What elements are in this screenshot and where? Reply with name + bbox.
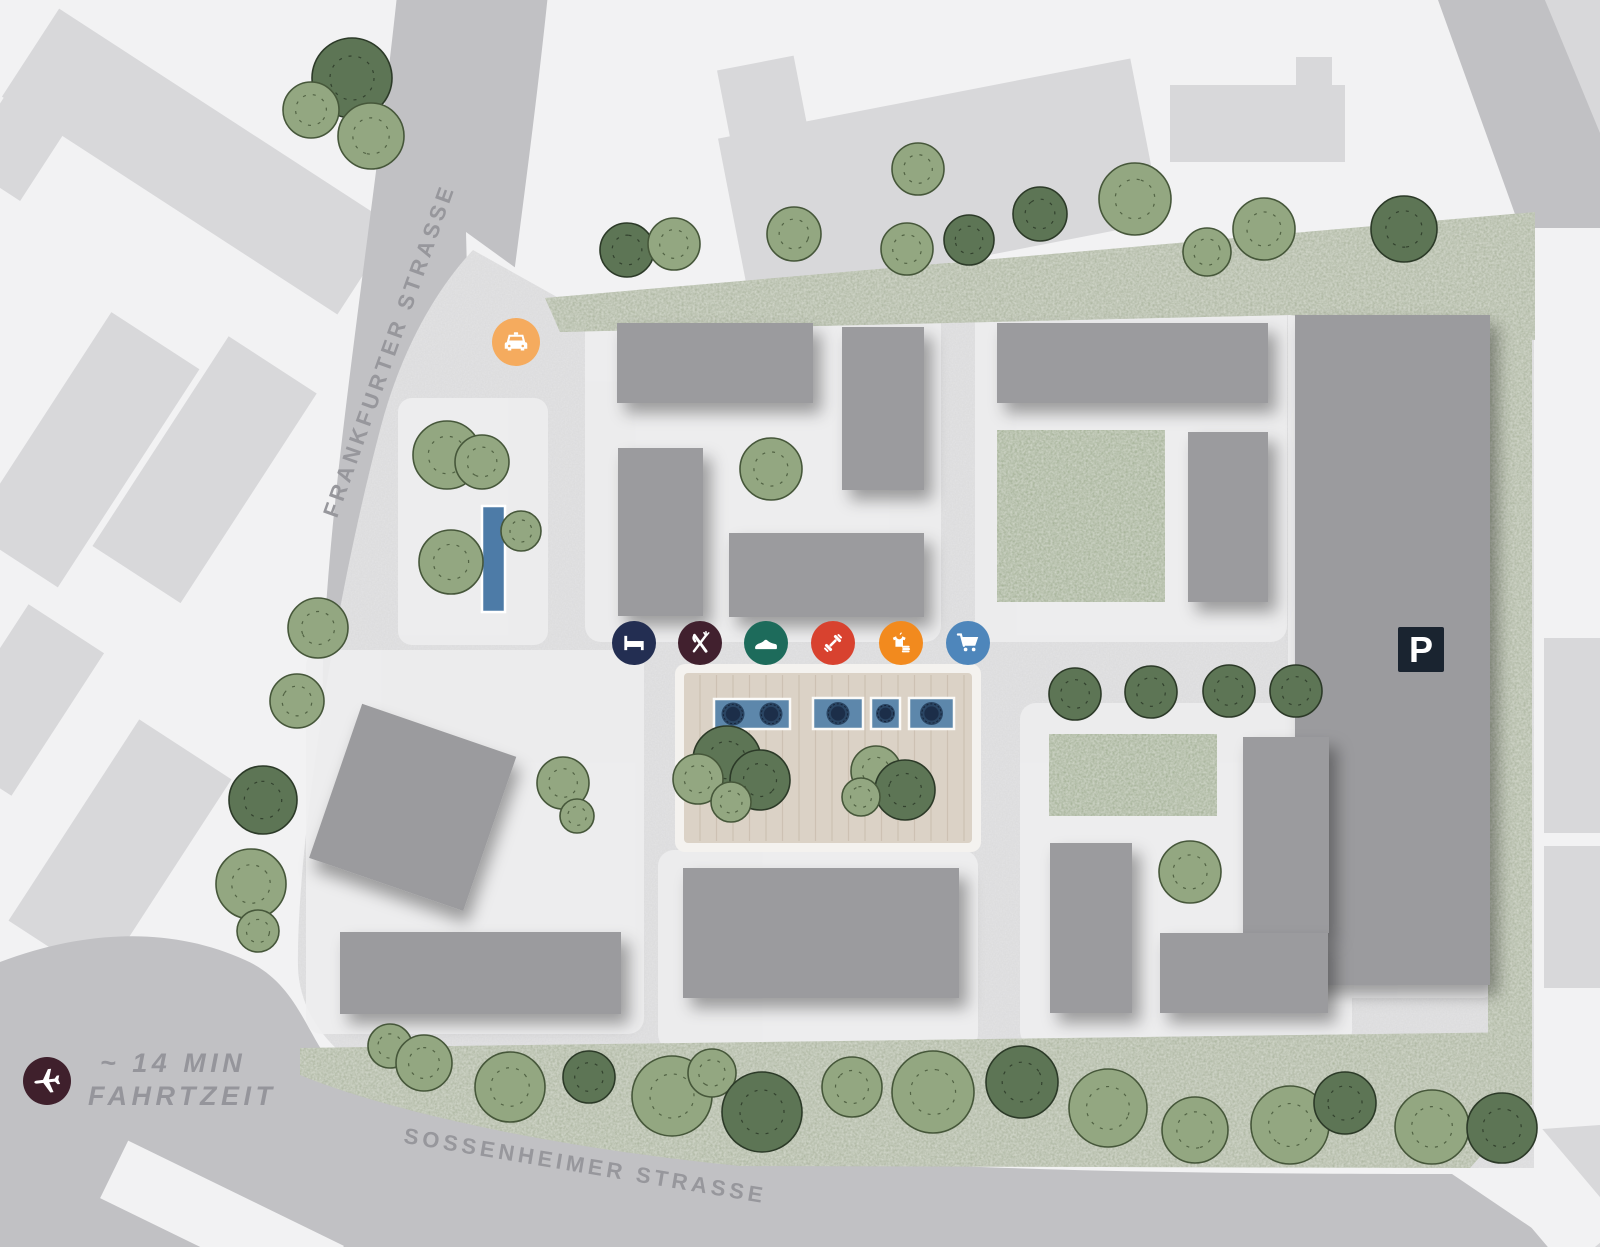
tree	[767, 207, 821, 261]
building	[997, 323, 1268, 403]
pool-basin	[876, 704, 895, 723]
tree	[1125, 666, 1177, 718]
tree	[216, 849, 286, 919]
tree	[283, 82, 339, 138]
tree	[648, 218, 700, 270]
grass-strip-right	[1488, 300, 1532, 1105]
tree	[1203, 665, 1255, 717]
tree	[1270, 665, 1322, 717]
fashion-store-icon[interactable]	[879, 621, 923, 665]
pool-basin	[920, 702, 943, 725]
building	[340, 932, 621, 1014]
hotel-bed-icon[interactable]	[612, 621, 656, 665]
tree	[1233, 198, 1295, 260]
tree	[501, 511, 541, 551]
building	[683, 868, 959, 998]
tree	[875, 760, 935, 820]
restaurant-icon[interactable]	[678, 621, 722, 665]
tree	[338, 103, 404, 169]
tree	[1314, 1072, 1376, 1134]
building	[1050, 843, 1132, 1013]
tree	[1049, 668, 1101, 720]
tree	[600, 223, 654, 277]
tree	[842, 778, 880, 816]
tree	[396, 1035, 452, 1091]
tree	[229, 766, 297, 834]
courtyard-green-2	[1049, 734, 1217, 816]
tree	[1183, 228, 1231, 276]
shoe-store-icon[interactable]	[744, 621, 788, 665]
tree	[563, 1051, 615, 1103]
building	[729, 533, 924, 617]
tree	[711, 782, 751, 822]
tree	[1371, 196, 1437, 262]
tree	[1395, 1090, 1469, 1164]
pool-basin	[827, 702, 850, 725]
site-plan-map: P	[0, 0, 1600, 1247]
site-map-svg: P	[0, 0, 1600, 1247]
tree	[1013, 187, 1067, 241]
parking-sign: P	[1398, 627, 1444, 672]
tree	[892, 143, 944, 195]
courtyard-green-1	[997, 430, 1165, 602]
tree	[270, 674, 324, 728]
tree	[1162, 1097, 1228, 1163]
travel-time-line2: FAHRTZEIT	[88, 1081, 277, 1111]
tree	[1069, 1069, 1147, 1147]
taxi-icon[interactable]	[492, 318, 540, 366]
parking-sign-label: P	[1409, 629, 1433, 670]
tree	[1099, 163, 1171, 235]
tree	[419, 530, 483, 594]
tree	[475, 1052, 545, 1122]
tree	[288, 598, 348, 658]
building	[617, 323, 813, 403]
building	[842, 327, 924, 490]
tree	[722, 1072, 802, 1152]
tree	[881, 223, 933, 275]
building	[618, 448, 703, 616]
tree	[560, 799, 594, 833]
tree	[1159, 841, 1221, 903]
tree	[822, 1057, 882, 1117]
tree	[237, 910, 279, 952]
pool-basin	[760, 703, 783, 726]
building	[1160, 933, 1328, 1013]
travel-time-line1: ~ 14 MIN	[100, 1048, 246, 1078]
fitness-icon[interactable]	[811, 621, 855, 665]
pool-basin	[722, 703, 745, 726]
tree	[1467, 1093, 1537, 1163]
tree	[892, 1051, 974, 1133]
building	[1243, 737, 1329, 933]
tree	[944, 215, 994, 265]
tree	[455, 435, 509, 489]
tree	[740, 438, 802, 500]
blue-marker-strip	[482, 506, 505, 612]
tree	[986, 1046, 1058, 1118]
supermarket-cart-icon[interactable]	[946, 621, 990, 665]
building	[1188, 432, 1268, 602]
